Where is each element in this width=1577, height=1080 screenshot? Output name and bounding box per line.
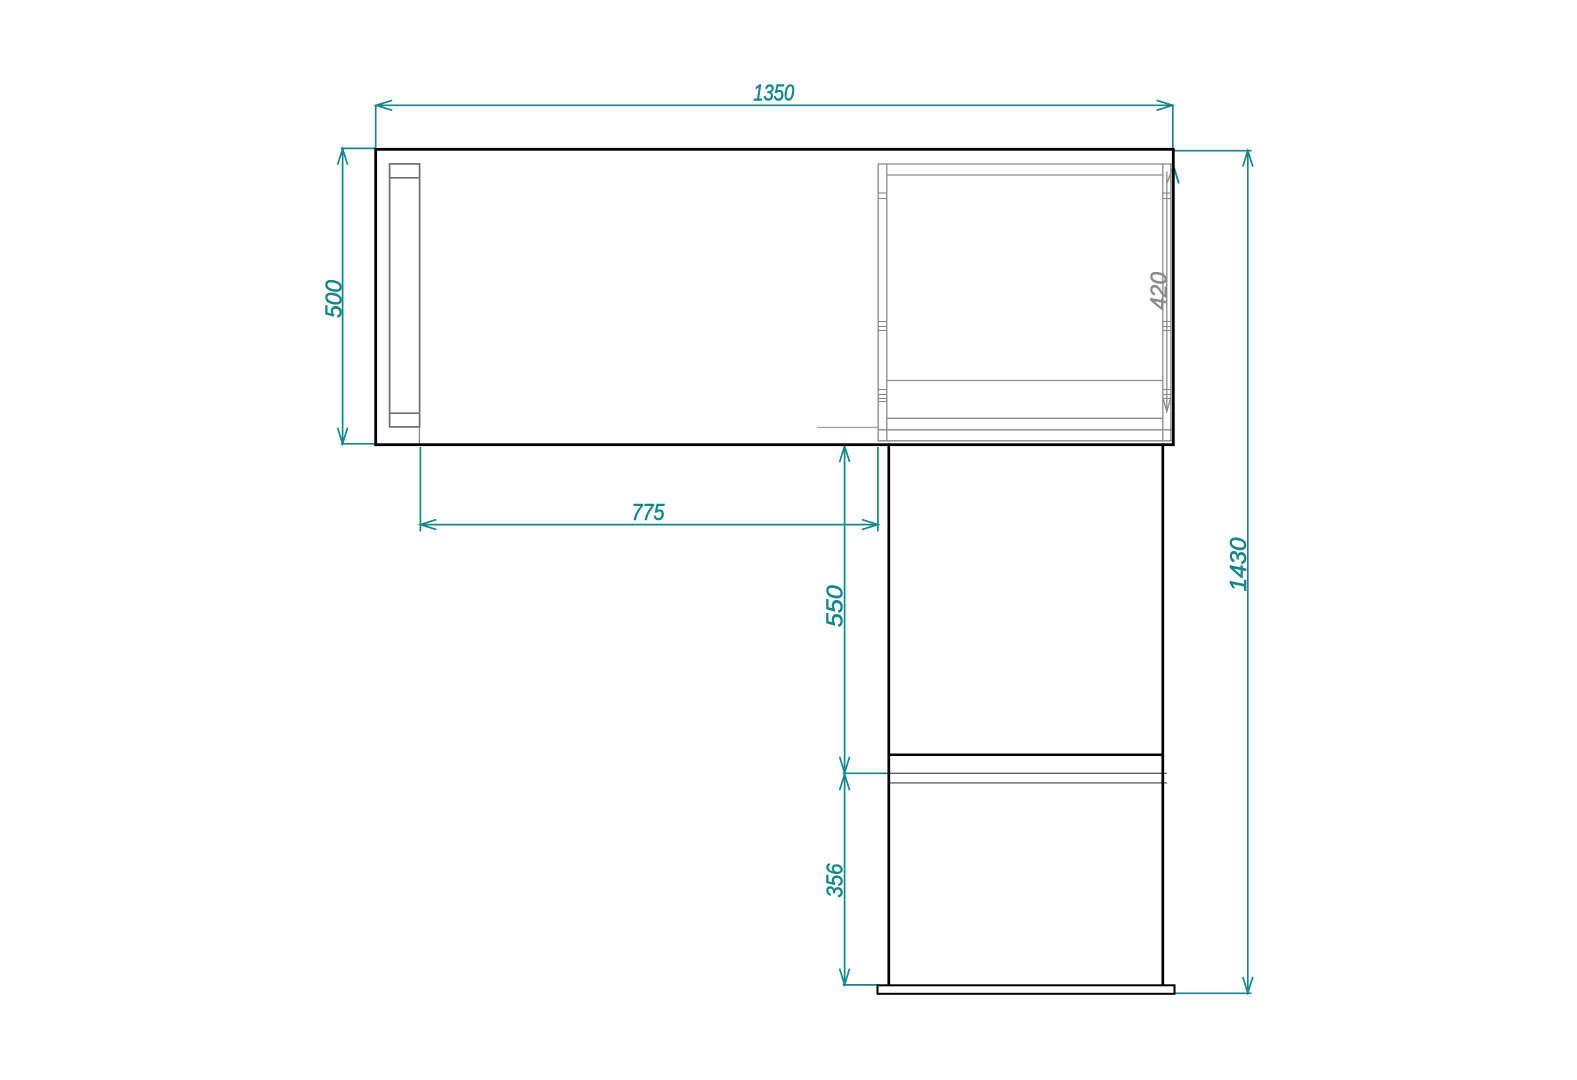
svg-text:1350: 1350 xyxy=(753,80,794,106)
svg-text:550: 550 xyxy=(822,585,848,627)
svg-text:420: 420 xyxy=(1146,272,1172,310)
svg-text:356: 356 xyxy=(822,863,848,897)
svg-text:500: 500 xyxy=(321,280,347,318)
svg-text:1430: 1430 xyxy=(1225,537,1251,591)
svg-text:775: 775 xyxy=(632,499,665,525)
